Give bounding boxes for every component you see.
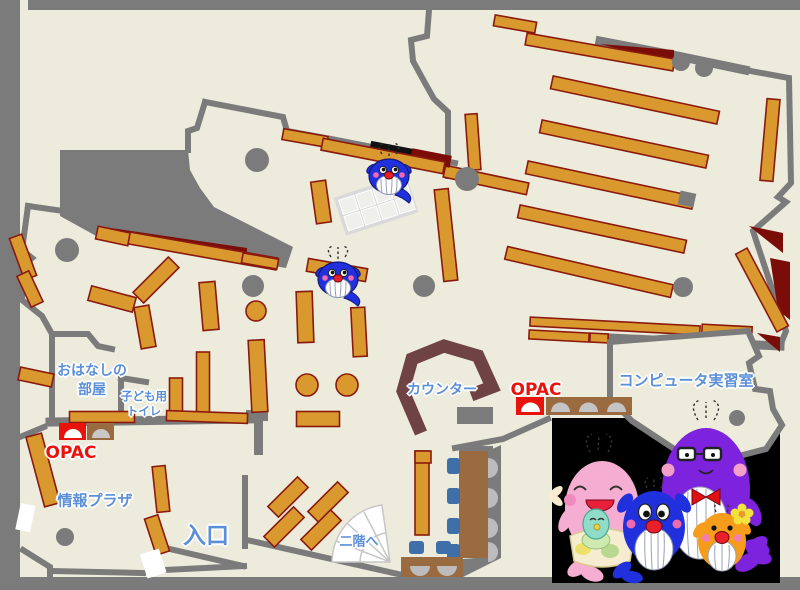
label-opac-right: OPAC [511, 380, 562, 400]
label-story-room: おはなしの部屋 [57, 362, 127, 400]
label-story-room-line1: おはなしの [57, 363, 127, 379]
label-kids-toilet-line1: 子ども用 [121, 389, 167, 403]
round-table [296, 374, 318, 396]
label-info-plaza: 情報プラザ [57, 490, 132, 511]
label-computer-room: コンピュータ実習室 [618, 370, 753, 391]
label-kids-toilet: 子ども用トイレ [121, 389, 167, 419]
pillar [673, 277, 693, 297]
map-border-top [28, 0, 800, 10]
pillar [455, 167, 479, 191]
round-table [336, 374, 358, 396]
pillar [242, 275, 264, 297]
label-opac-left: OPAC [46, 443, 97, 463]
pillar [245, 148, 269, 172]
label-counter: カウンター [407, 379, 477, 399]
map-border-left [0, 0, 20, 590]
label-story-room-line2: 部屋 [78, 382, 106, 398]
pillar [55, 238, 79, 262]
round-table [246, 301, 266, 321]
label-kids-toilet-line2: トイレ [127, 404, 162, 418]
pillar [672, 53, 690, 71]
whale-mascot-icon [314, 246, 362, 306]
pillar [695, 59, 713, 77]
staff-desk [457, 407, 493, 424]
pillar [729, 410, 745, 426]
library-floor-map: おはなしの部屋 子ども用トイレ OPAC 情報プラザ 入口 カウンター OPAC… [0, 0, 800, 590]
label-entrance: 入口 [183, 516, 229, 550]
doorways [15, 503, 166, 579]
pillar [56, 528, 74, 546]
pillar [413, 275, 435, 297]
label-stairs-up: 二階へ [339, 531, 378, 550]
